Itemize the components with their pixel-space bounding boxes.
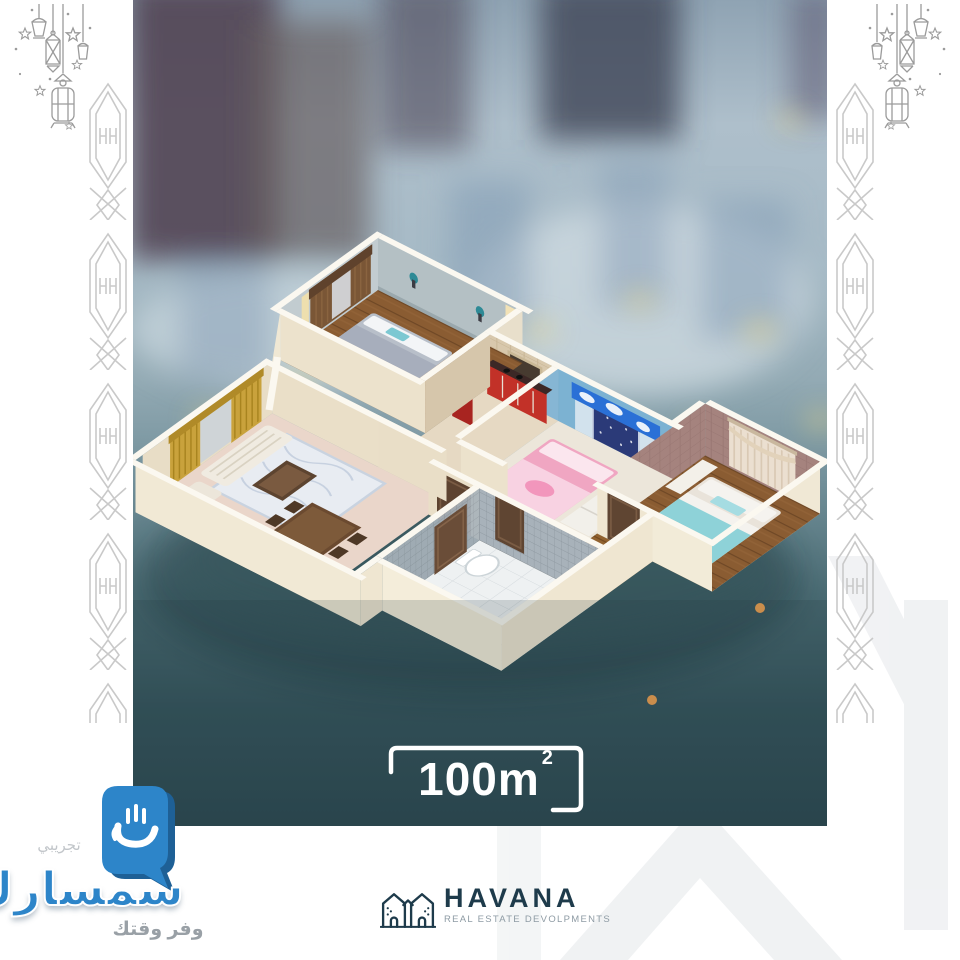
lantern-decoration-right-icon (869, 4, 946, 129)
ornament-border-left (86, 70, 131, 723)
area-badge: 100m2 (383, 742, 589, 816)
ornament-border-right (833, 70, 878, 723)
watermark-trial-label: تجريبي (24, 836, 94, 854)
lantern-decoration-left-icon (15, 4, 92, 129)
area-unit: m (498, 756, 540, 802)
watermark-tagline: وفر وقتك (108, 918, 208, 941)
brand-name: HAVANA (444, 884, 611, 912)
photo (86, 0, 840, 826)
building-icon (380, 884, 436, 934)
brand-logo: HAVANA REAL ESTATE DEVOLPMENTS (380, 884, 611, 934)
poster-art (0, 0, 960, 960)
area-value: 100 (418, 756, 498, 802)
watermark-app-name: سمسارك (2, 856, 184, 922)
poster: 100m2 HAVANA REAL ESTATE DEVOLPMENTS تجر… (0, 0, 960, 960)
area-superscript: 2 (542, 748, 554, 768)
brand-tagline: REAL ESTATE DEVOLPMENTS (444, 914, 611, 925)
